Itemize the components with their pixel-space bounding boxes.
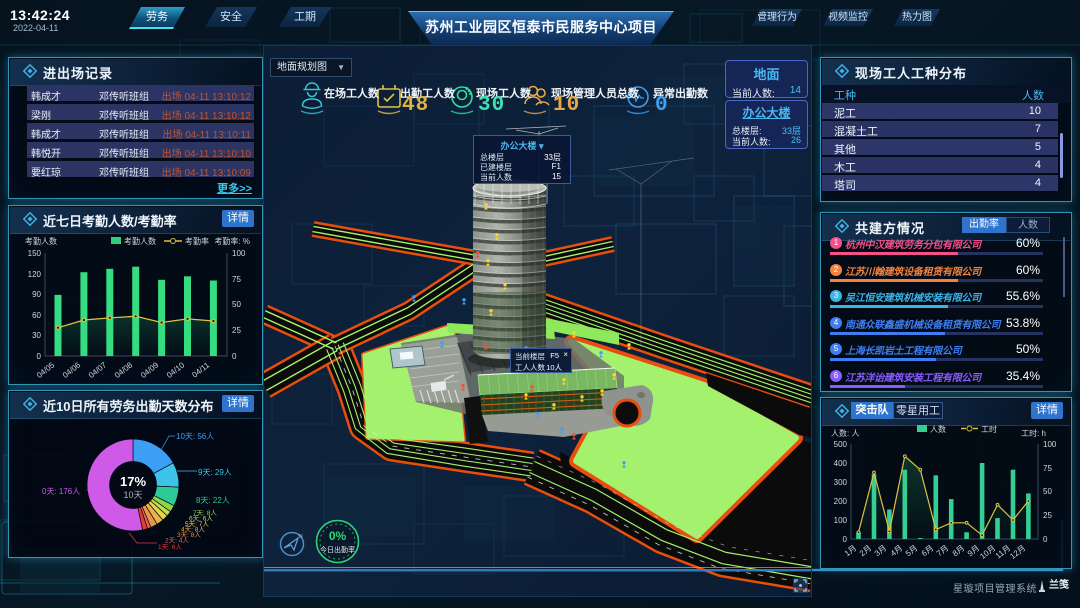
svg-text:300: 300 (834, 478, 848, 487)
svg-text:50: 50 (232, 300, 241, 309)
svg-text:考勤率: 考勤率 (185, 236, 209, 246)
svg-text:考勤人数: 考勤人数 (25, 236, 57, 246)
svg-text:人数: 人数 (930, 424, 946, 434)
svg-text:90: 90 (32, 290, 41, 299)
svg-text:150: 150 (28, 249, 42, 258)
svg-text:25: 25 (1043, 511, 1052, 520)
svg-text:50: 50 (1043, 487, 1052, 496)
svg-text:04/10: 04/10 (165, 360, 187, 380)
svg-text:8天: 22人: 8天: 22人 (196, 496, 230, 505)
svg-text:60: 60 (32, 311, 41, 320)
svg-text:0%: 0% (329, 529, 347, 543)
svg-text:25: 25 (232, 326, 241, 335)
svg-text:7月: 7月 (935, 543, 950, 558)
svg-text:100: 100 (232, 249, 246, 258)
svg-text:1天: 6人: 1天: 6人 (158, 543, 182, 551)
svg-text:30: 30 (32, 331, 41, 340)
svg-text:0: 0 (232, 352, 237, 361)
svg-text:9天: 29人: 9天: 29人 (198, 468, 232, 477)
svg-text:0: 0 (37, 352, 42, 361)
svg-text:0: 0 (843, 535, 848, 544)
svg-text:5月: 5月 (904, 543, 919, 558)
svg-text:75: 75 (232, 275, 241, 284)
svg-text:考勤人数: 考勤人数 (124, 236, 156, 246)
svg-text:400: 400 (834, 459, 848, 468)
svg-text:工时: h: 工时: h (1021, 428, 1046, 438)
svg-text:10天: 10天 (123, 490, 142, 500)
svg-text:500: 500 (834, 440, 848, 449)
svg-text:兰笺: 兰笺 (1049, 578, 1069, 591)
svg-text:2月: 2月 (858, 543, 873, 558)
svg-text:今日出勤率: 今日出勤率 (320, 545, 355, 554)
svg-text:1月: 1月 (843, 543, 858, 558)
svg-text:04/09: 04/09 (139, 360, 161, 380)
svg-text:12月: 12月 (1008, 543, 1027, 561)
svg-text:3月: 3月 (873, 543, 888, 558)
svg-text:04/11: 04/11 (190, 360, 211, 379)
svg-text:04/08: 04/08 (113, 360, 135, 380)
svg-text:120: 120 (28, 270, 42, 279)
svg-text:6月: 6月 (920, 543, 935, 558)
svg-text:04/06: 04/06 (61, 360, 83, 380)
svg-text:N: N (299, 534, 303, 540)
svg-text:0: 0 (1043, 535, 1048, 544)
svg-text:0天: 176人: 0天: 176人 (42, 487, 80, 496)
svg-text:75: 75 (1043, 464, 1052, 473)
svg-text:10天: 56人: 10天: 56人 (176, 432, 214, 441)
svg-text:人数: 人: 人数: 人 (831, 428, 859, 438)
svg-text:04/07: 04/07 (87, 360, 109, 380)
svg-text:工时: 工时 (981, 424, 997, 434)
svg-text:17%: 17% (120, 474, 146, 489)
svg-text:100: 100 (834, 516, 848, 525)
svg-text:考勤率: %: 考勤率: % (214, 236, 250, 246)
svg-text:100: 100 (1043, 440, 1057, 449)
svg-text:4月: 4月 (889, 543, 904, 558)
svg-text:200: 200 (834, 497, 848, 506)
svg-text:8月: 8月 (951, 543, 966, 558)
svg-text:04/05: 04/05 (35, 360, 57, 380)
